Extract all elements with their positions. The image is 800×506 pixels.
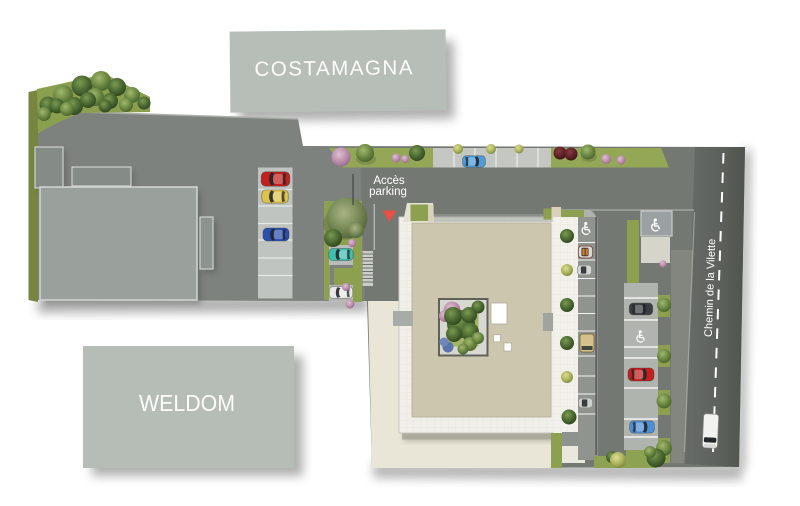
svg-text:COSTAMAGNA: COSTAMAGNA [254, 56, 413, 81]
svg-text:WELDOM: WELDOM [139, 390, 235, 416]
svg-text:parking: parking [369, 186, 407, 198]
